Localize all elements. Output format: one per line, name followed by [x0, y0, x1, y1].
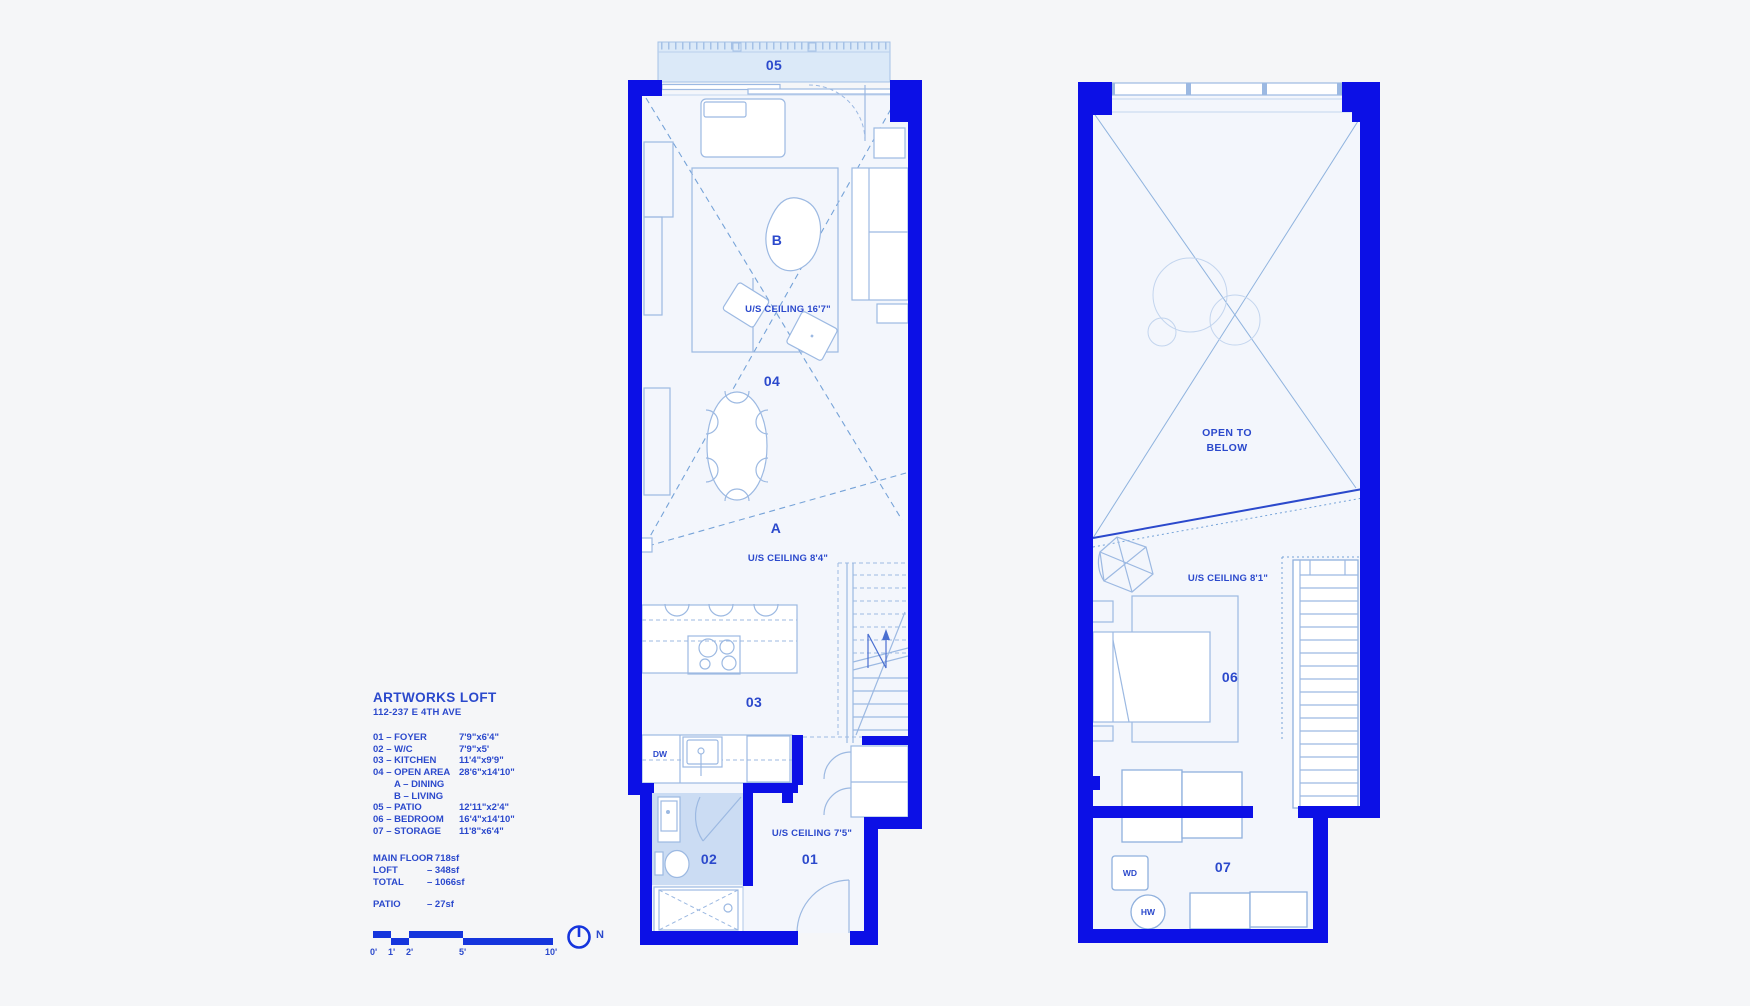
side-table — [874, 128, 905, 158]
ceiling-note-dining: U/S CEILING 8'4" — [748, 553, 828, 564]
room-dims: 12'11"x2'4" — [459, 802, 509, 813]
kitchen-peninsula — [642, 605, 797, 673]
area-value: – 348sf — [427, 865, 459, 876]
room-label-bedroom: 06 — [1222, 669, 1238, 685]
dining-table-set — [706, 391, 768, 501]
area-value: – 27sf — [427, 899, 454, 910]
room-dims: 28'6"x14'10" — [459, 767, 515, 778]
room-row: 02 – W/C7'9"x5' — [373, 744, 515, 756]
side-table — [877, 304, 908, 323]
loft-stair — [1282, 557, 1360, 808]
project-title: ARTWORKS LOFT — [373, 690, 515, 705]
storage-shelf — [1190, 893, 1250, 929]
area-name: MAIN FLOOR — [373, 853, 427, 865]
area-name: TOTAL — [373, 877, 427, 889]
scale-segment — [463, 938, 553, 945]
area-summary: MAIN FLOOR– 718sf LOFT– 348sf TOTAL– 106… — [373, 853, 515, 888]
scale-tick-label: 1' — [388, 947, 395, 957]
floor-plan-canvas: 05 B U/S CEILING 16'7" 04 A U/S CEILING … — [0, 0, 1750, 1006]
room-row: 05 – PATIO12'11"x2'4" — [373, 802, 515, 814]
room-dims: 7'9"x5' — [459, 744, 489, 755]
north-indicator: N — [566, 922, 612, 952]
vanity — [658, 797, 680, 842]
scale-tick-label: 2' — [406, 947, 413, 957]
room-schedule: 01 – FOYER7'9"x6'4" 02 – W/C7'9"x5' 03 –… — [373, 732, 515, 837]
room-name: 07 – STORAGE — [373, 826, 459, 838]
room-dims: 7'9"x6'4" — [459, 732, 499, 743]
project-address: 112-237 E 4TH AVE — [373, 707, 515, 718]
room-name: 06 – BEDROOM — [373, 814, 459, 826]
area-row: TOTAL– 1066sf — [373, 877, 515, 889]
room-name: 01 – FOYER — [373, 732, 459, 744]
area-row: LOFT– 348sf — [373, 865, 515, 877]
area-value: – 1066sf — [427, 877, 465, 888]
room-dims: 11'8"x6'4" — [459, 826, 504, 837]
room-name: 03 – KITCHEN — [373, 755, 459, 767]
area-name: PATIO — [373, 899, 427, 911]
room-row: 03 – KITCHEN11'4"x9'9" — [373, 755, 515, 767]
room-row: 01 – FOYER7'9"x6'4" — [373, 732, 515, 744]
north-label: N — [596, 929, 604, 941]
hot-water-label: HW — [1141, 907, 1156, 917]
room-row: B – LIVING — [373, 791, 515, 803]
scale-tick-label: 5' — [459, 947, 466, 957]
room-label-living: B — [772, 232, 782, 248]
scale-tick-label: 10' — [545, 947, 557, 957]
room-row: 04 – OPEN AREA28'6"x14'10" — [373, 767, 515, 779]
floor-plan-sheet: 05 B U/S CEILING 16'7" 04 A U/S CEILING … — [0, 0, 1750, 1006]
sofa — [852, 168, 908, 300]
scale-segment — [391, 938, 409, 945]
scale-segment — [409, 931, 463, 938]
wardrobe — [1182, 772, 1242, 838]
scale-tick-label: 0' — [370, 947, 377, 957]
shower — [654, 887, 743, 933]
room-row: 06 – BEDROOM16'4"x14'10" — [373, 814, 515, 826]
bed — [1093, 632, 1210, 722]
daybed-pillow — [704, 102, 746, 117]
toilet — [655, 851, 689, 878]
scale-bar: 0' 1' 2' 5' 10' — [373, 931, 563, 961]
plan-main-floor: 05 B U/S CEILING 16'7" 04 A U/S CEILING … — [628, 42, 922, 945]
ceiling-note-foyer: U/S CEILING 7'5" — [772, 828, 852, 839]
room-label-dining: A — [771, 520, 781, 536]
room-label-wc: 02 — [701, 851, 717, 867]
room-label-storage: 07 — [1215, 859, 1231, 875]
open-to-below-label-2: BELOW — [1206, 442, 1247, 454]
room-name: B – LIVING — [373, 791, 459, 803]
room-label-foyer: 01 — [802, 851, 818, 867]
washer-dryer-label: WD — [1123, 868, 1137, 878]
area-row: MAIN FLOOR– 718sf — [373, 853, 515, 865]
room-label-patio: 05 — [766, 57, 782, 73]
room-row: 07 – STORAGE11'8"x6'4" — [373, 826, 515, 838]
storage-shelf — [1250, 892, 1307, 927]
room-name: A – DINING — [373, 779, 459, 791]
ceiling-note-living: U/S CEILING 16'7" — [745, 304, 831, 315]
room-dims: 11'4"x9'9" — [459, 755, 504, 766]
room-row: A – DINING — [373, 779, 515, 791]
open-to-below-label-1: OPEN TO — [1202, 427, 1252, 439]
dishwasher-label: DW — [653, 749, 668, 759]
room-dims: 16'4"x14'10" — [459, 814, 515, 825]
legend: ARTWORKS LOFT 112-237 E 4TH AVE 01 – FOY… — [373, 690, 515, 911]
area-name: LOFT — [373, 865, 427, 877]
north-compass-icon — [566, 922, 594, 950]
area-value: – 718sf — [427, 853, 459, 864]
room-name: 05 – PATIO — [373, 802, 459, 814]
room-label-kitchen: 03 — [746, 694, 762, 710]
room-name: 04 – OPEN AREA — [373, 767, 459, 779]
ceiling-note-loft: U/S CEILING 8'1" — [1188, 573, 1268, 584]
room-label-open-area: 04 — [764, 373, 780, 389]
plan-loft: OPEN TO BELOW U/S CEILING 8'1" 06 07 WD … — [1078, 82, 1380, 943]
scale-segment — [373, 931, 391, 938]
room-name: 02 – W/C — [373, 744, 459, 756]
patio-area-row: PATIO– 27sf — [373, 899, 515, 911]
